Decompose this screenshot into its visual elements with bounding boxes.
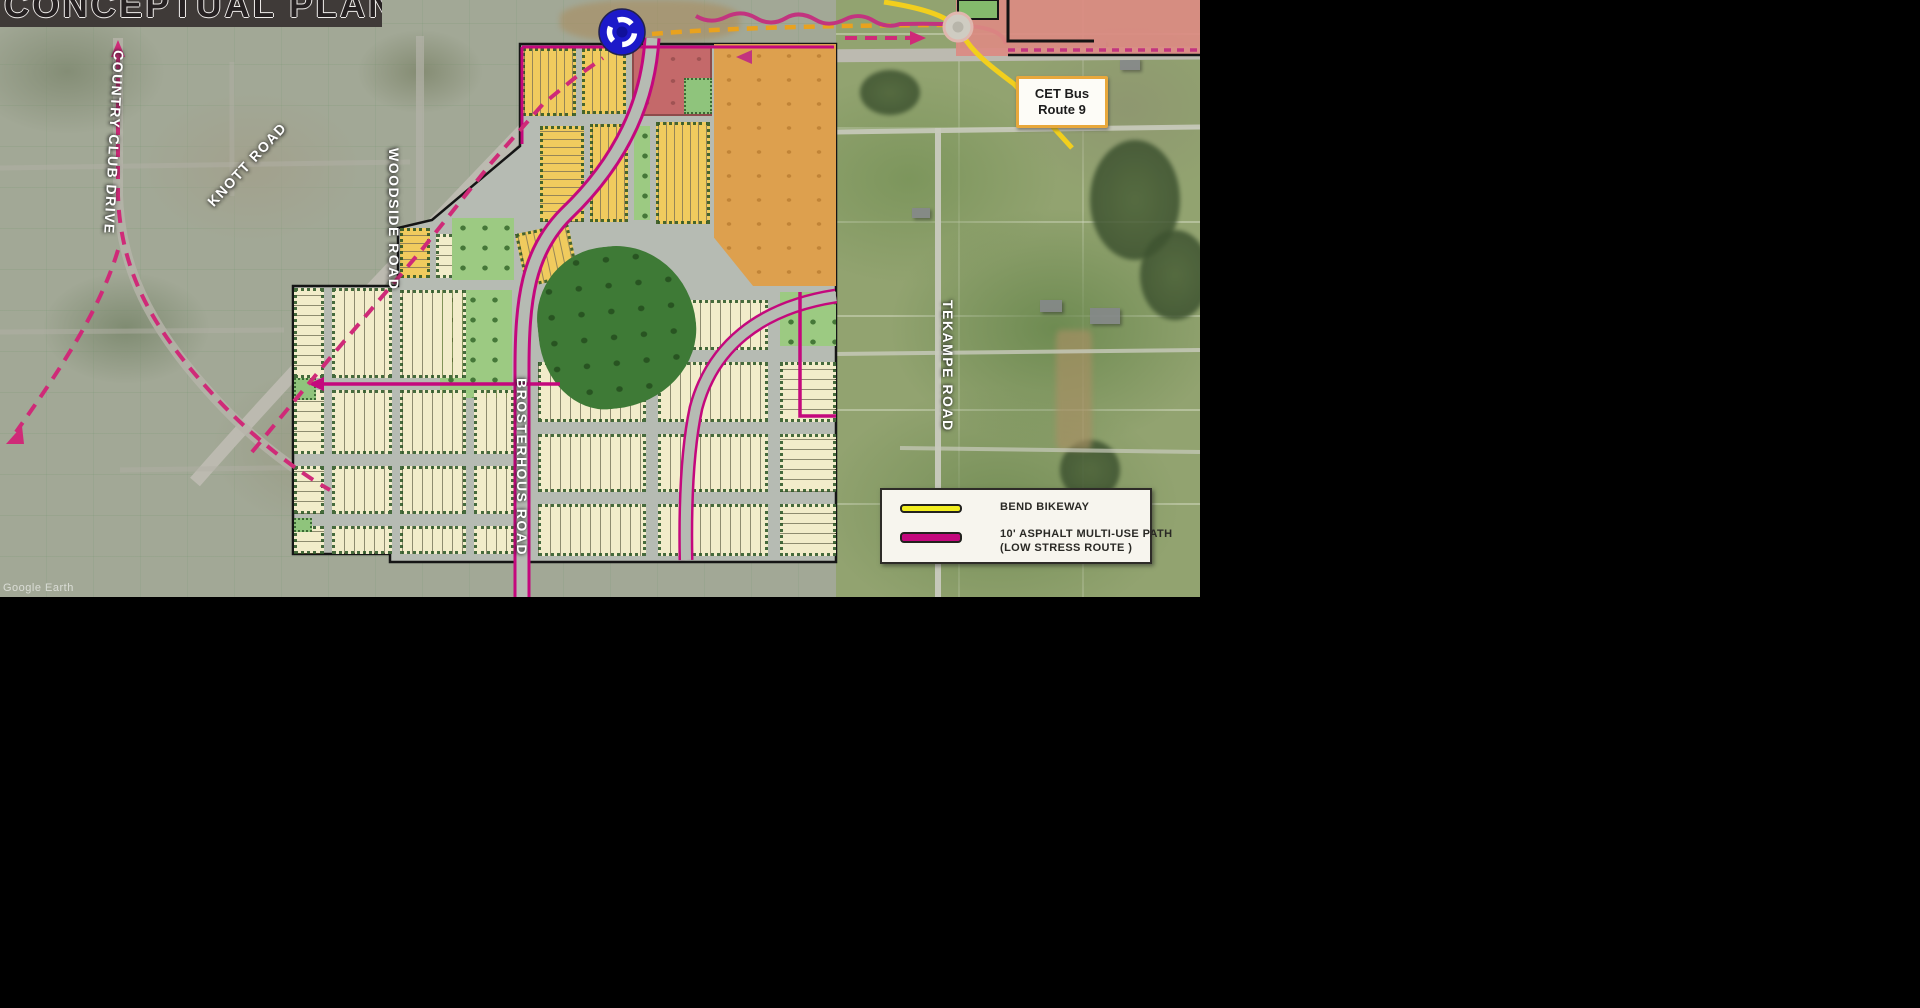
road-label-brosterhous-road: BROSTERHOUS ROAD xyxy=(514,378,530,556)
conceptual-plan-map: CONCEPTUAL PLAN COUNTRY CLUB DRIVE KNOTT… xyxy=(0,0,1200,597)
watermark-google-earth: Google Earth xyxy=(3,582,74,594)
multi-use-path-southeast xyxy=(800,292,836,416)
legend-label-bikeway: BEND BIKEWAY xyxy=(1000,501,1089,513)
route-arrowhead-east xyxy=(910,31,926,45)
bus-callout-line1: CET Bus xyxy=(1035,86,1089,102)
legend-label-multi-use-path: 10' ASPHALT MULTI-USE PATH xyxy=(1000,528,1173,540)
east-arc-road xyxy=(686,296,836,560)
multi-use-path-east-arc xyxy=(686,296,836,560)
roundabout-icon xyxy=(599,9,645,55)
bus-route-dashed-line xyxy=(652,25,968,34)
path-marker-arrow xyxy=(736,50,752,64)
road-label-tekampe-road: TEKAMPE ROAD xyxy=(940,300,956,432)
bus-route-callout: CET Bus Route 9 xyxy=(1016,76,1108,128)
low-stress-route-branch xyxy=(16,250,118,432)
bus-callout-line2: Route 9 xyxy=(1038,102,1086,118)
legend-swatch-multi-use-path xyxy=(900,532,962,543)
low-stress-route-knott xyxy=(252,58,603,452)
page-title: CONCEPTUAL PLAN xyxy=(4,0,382,26)
route-arrowhead-southwest xyxy=(6,426,24,444)
legend-label-multi-use-path-line2: (LOW STRESS ROUTE ) xyxy=(1000,542,1132,554)
legend-swatch-bikeway xyxy=(900,504,962,513)
legend: BEND BIKEWAY 10' ASPHALT MULTI-USE PATH … xyxy=(880,488,1152,564)
low-stress-route-country-club xyxy=(118,56,330,490)
title-bar: CONCEPTUAL PLAN xyxy=(0,0,382,27)
road-label-woodside-road: WOODSIDE ROAD xyxy=(386,148,402,290)
mini-roundabout-island xyxy=(953,22,964,33)
screenshot-canvas: CONCEPTUAL PLAN COUNTRY CLUB DRIVE KNOTT… xyxy=(0,0,1920,1008)
brosterhous-road-overlay xyxy=(522,38,652,597)
